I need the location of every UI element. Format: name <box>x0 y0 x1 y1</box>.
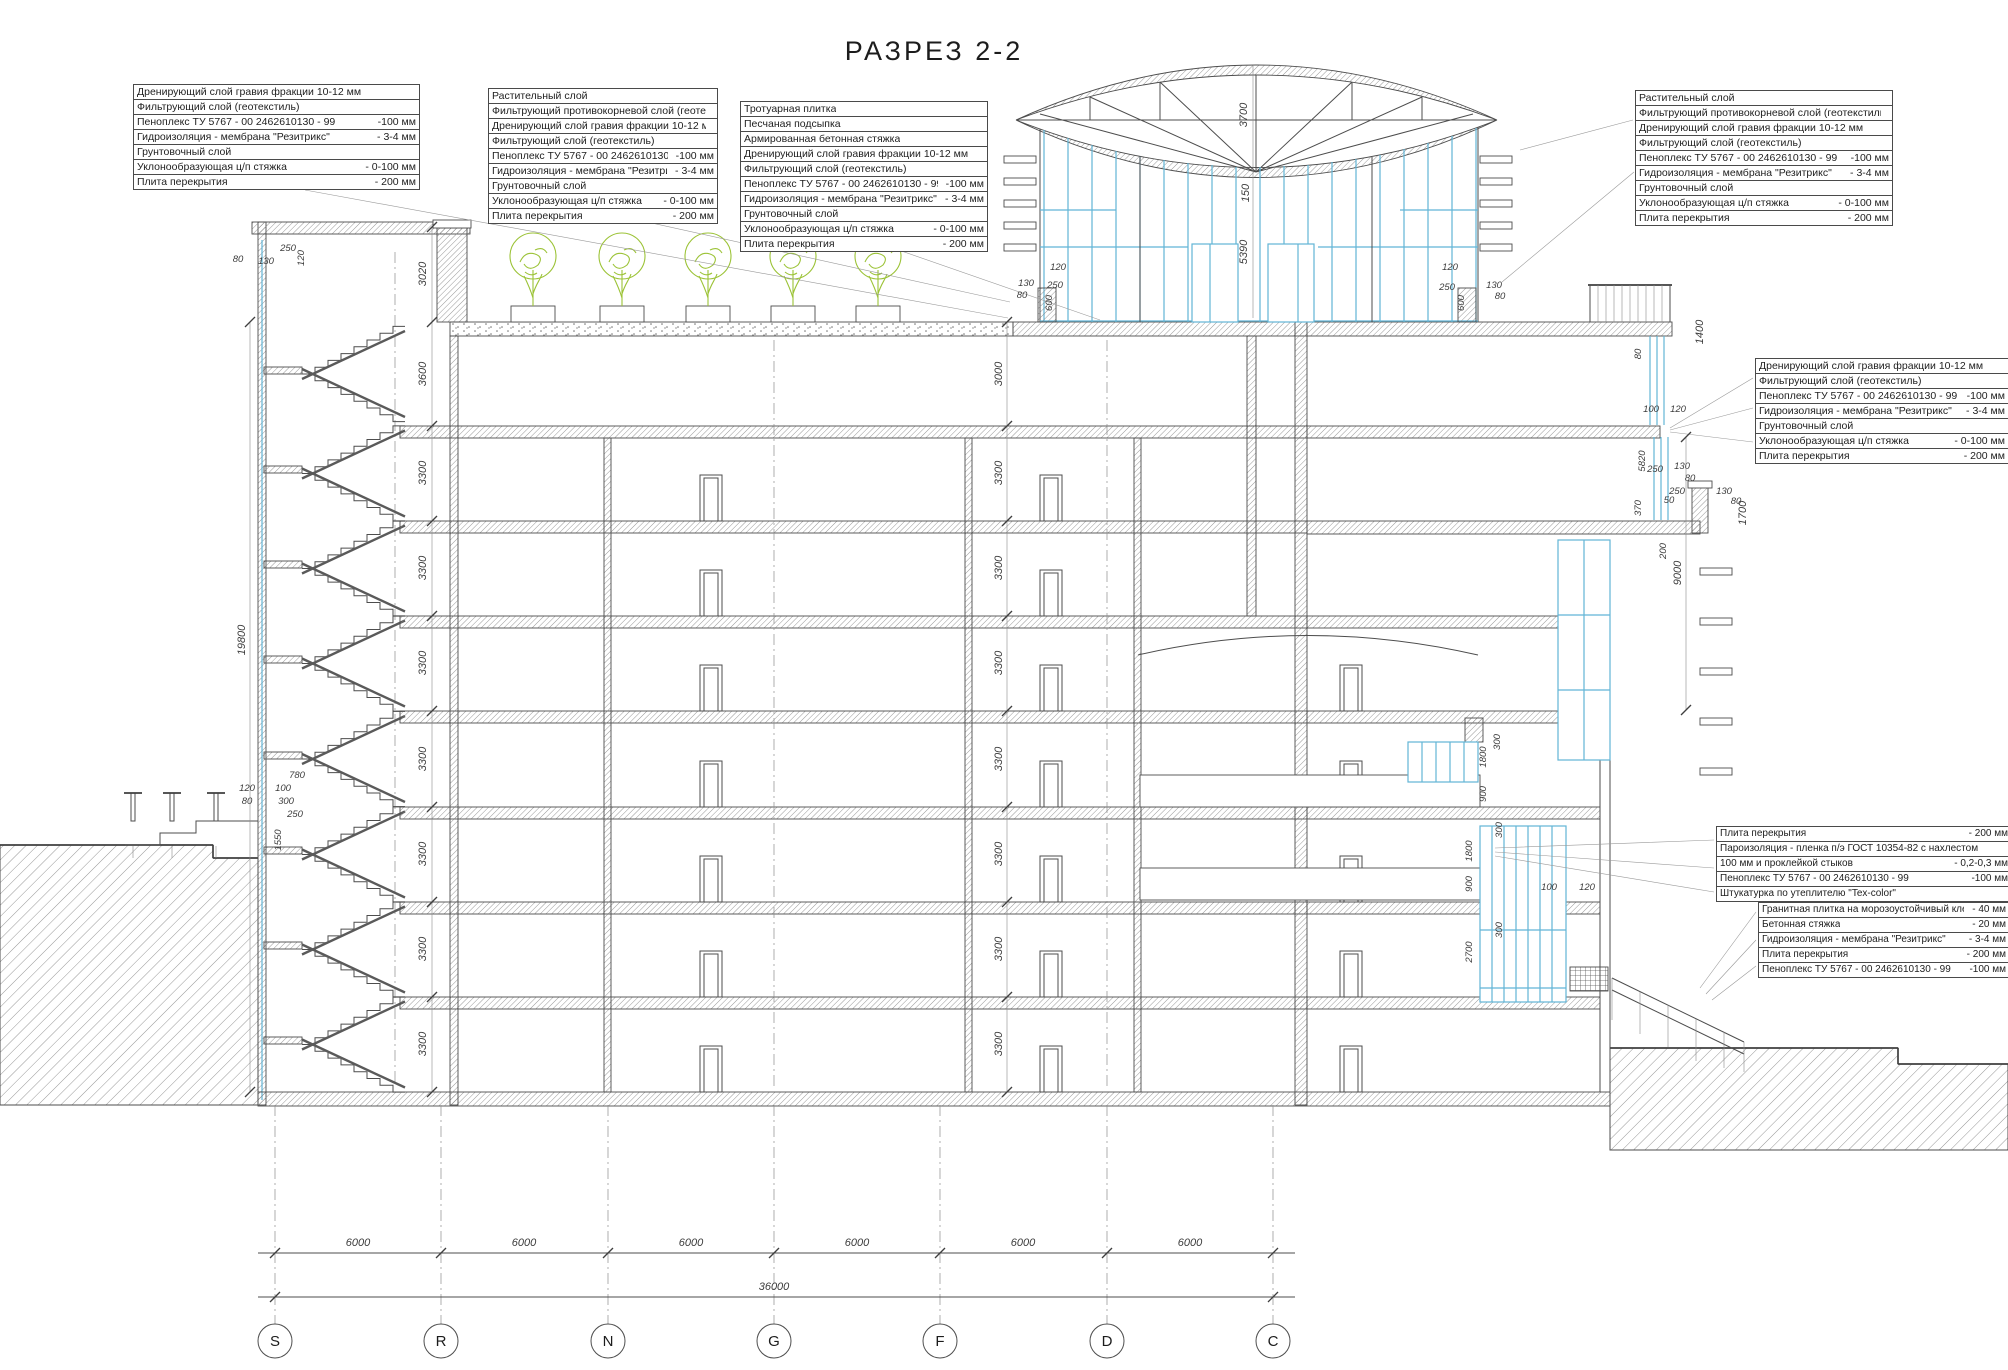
layer-table-pavement: Тротуарная плитка Песчаная подсыпка Арми… <box>740 101 988 252</box>
dimension-label: 300 <box>1494 821 1505 838</box>
table-row: Пеноплекс ТУ 5767 - 00 2462610130 - 99-1… <box>1636 151 1892 166</box>
axis-label: G <box>768 1333 780 1350</box>
dimension-label: 3300 <box>417 841 429 866</box>
dimension-label: 300 <box>1492 733 1503 750</box>
dimension-label: 3300 <box>993 746 1005 771</box>
dimension-label: 19800 <box>236 624 248 655</box>
dimension-label: 36000 <box>759 1281 790 1293</box>
table-row: Фильтрующий слой (геотекстиль) <box>1636 136 1892 151</box>
table-row: Армированная бетонная стяжка <box>741 132 987 147</box>
dimension-label: 1700 <box>1737 500 1749 525</box>
dimension-label: 100 <box>1541 882 1558 893</box>
page-title: РАЗРЕЗ 2-2 <box>764 36 1104 67</box>
dimension-label: 3300 <box>417 555 429 580</box>
table-row: Уклонообразующая ц/п стяжка- 0-100 мм <box>741 222 987 237</box>
dimension-label: 9000 <box>1672 560 1684 585</box>
table-row: Гидроизоляция - мембрана "Резитрикс"- 3-… <box>741 192 987 207</box>
dimension-label: 600 <box>1044 294 1055 311</box>
section-sheet: 3020 3600 3300 3300 3300 3300 3300 3300 … <box>0 0 2008 1370</box>
dimension-label: 120 <box>1050 262 1067 273</box>
penthouse-glazing <box>1004 65 1512 322</box>
table-row: Фильтрующий слой (геотекстиль) <box>741 162 987 177</box>
dimension-label: 1800 <box>1478 746 1489 768</box>
dimension-label: 100 <box>1643 404 1660 415</box>
table-row: Растительный слой <box>489 89 717 104</box>
layer-table-ceiling: Плита перекрытия- 200 мм Пароизоляция - … <box>1716 826 2008 902</box>
dimension-label: 250 <box>1646 464 1664 475</box>
dimension-label: 3600 <box>417 361 429 386</box>
dimension-label: 6000 <box>346 1237 371 1249</box>
dimension-label: 6000 <box>1011 1237 1036 1249</box>
axis-label: F <box>935 1333 944 1350</box>
table-row: Грунтовочный слой <box>134 145 419 160</box>
table-row: Плита перекрытия- 200 мм <box>134 175 419 189</box>
layer-table-annex-roof: Дренирующий слой гравия фракции 10-12 мм… <box>1755 358 2008 464</box>
table-row: Плита перекрытия- 200 мм <box>1636 211 1892 225</box>
table-row: Уклонообразующая ц/п стяжка- 0-100 мм <box>1636 196 1892 211</box>
table-row: Дренирующий слой гравия фракции 10-12 мм <box>134 85 419 100</box>
table-row: Фильтрующий слой (геотекстиль) <box>1756 374 2008 389</box>
dimension-label: 3300 <box>417 936 429 961</box>
dimension-label: 120 <box>1579 882 1596 893</box>
table-row: Фильтрующий слой (геотекстиль) <box>489 134 717 149</box>
dimension-label: 6000 <box>679 1237 704 1249</box>
dimension-label: 250 <box>286 809 304 820</box>
dimension-label: 3300 <box>993 1031 1005 1056</box>
table-row: Плита перекрытия- 200 мм <box>1756 449 2008 463</box>
table-row: Дренирующий слой гравия фракции 10-12 мм <box>1636 121 1892 136</box>
dimension-label: 3700 <box>1238 102 1250 127</box>
dimension-label: 120 <box>239 783 256 794</box>
dimension-label: 3300 <box>417 746 429 771</box>
dimension-label: 80 <box>1017 290 1028 301</box>
dimension-label: 150 <box>1240 183 1252 202</box>
layer-table-granite: Гранитная плитка на морозоустойчивый кле… <box>1758 902 2008 978</box>
layer-table-roof-2: Растительный слой Фильтрующий противокор… <box>488 88 718 224</box>
dimension-label: 780 <box>289 770 306 781</box>
dimension-label: 250 <box>279 243 297 254</box>
railing-post <box>124 793 225 821</box>
table-row: Пеноплекс ТУ 5767 - 00 2462610130 - 99-1… <box>134 115 419 130</box>
dimension-label: 300 <box>1494 921 1505 938</box>
dimension-label: 250 <box>1438 282 1456 293</box>
dimension-label: 3020 <box>417 261 429 286</box>
table-row: Гранитная плитка на морозоустойчивый кле… <box>1759 903 2008 918</box>
dimension-label: 250 <box>1046 280 1064 291</box>
table-row: Уклонообразующая ц/п стяжка- 0-100 мм <box>134 160 419 175</box>
table-row: 100 мм и проклейкой стыков- 0,2-0,3 мм <box>1717 857 2008 872</box>
dimension-label: 6000 <box>1178 1237 1203 1249</box>
table-row: Уклонообразующая ц/п стяжка- 0-100 мм <box>1756 434 2008 449</box>
table-row: Растительный слой <box>1636 91 1892 106</box>
dimension-label: 6000 <box>512 1237 537 1249</box>
axis-markers: S R N G F D C <box>258 1324 1290 1358</box>
dimension-label: 1800 <box>1464 840 1475 862</box>
table-row: Плита перекрытия- 200 мм <box>741 237 987 251</box>
dimension-label: 370 <box>1633 499 1644 516</box>
table-row: Фильтрующий противокорневой слой (геотек… <box>1636 106 1892 121</box>
dimension-label: 80 <box>1633 348 1644 359</box>
ground-left <box>0 845 258 1105</box>
table-row: Дренирующий слой гравия фракции 10-12 мм <box>1756 359 2008 374</box>
dome-truss <box>1016 65 1497 178</box>
axis-label: C <box>1268 1333 1279 1350</box>
layer-table-roof-right: Растительный слой Фильтрующий противокор… <box>1635 90 1893 226</box>
stair-tower <box>252 220 471 1105</box>
dimension-label: 900 <box>1478 785 1489 802</box>
table-row: Пеноплекс ТУ 5767 - 00 2462610130 - 99-1… <box>489 149 717 164</box>
dimension-label: 80 <box>1495 291 1506 302</box>
table-row: Гидроизоляция - мембрана "Резитрикс"- 3-… <box>134 130 419 145</box>
ground-right <box>1610 1048 2008 1150</box>
dimension-label: 3300 <box>993 555 1005 580</box>
dimension-label: 120 <box>296 249 307 266</box>
table-row: Плита перекрытия- 200 мм <box>1759 948 2008 963</box>
table-row: Грунтовочный слой <box>741 207 987 222</box>
dimension-label: 3300 <box>993 650 1005 675</box>
table-row: Пеноплекс ТУ 5767 - 00 2462610130 - 99-1… <box>1759 963 2008 977</box>
dimension-label: 120 <box>1442 262 1459 273</box>
dimension-label: 130 <box>1674 461 1691 472</box>
axis-label: N <box>603 1333 614 1350</box>
dimension-label: 80 <box>1685 473 1696 484</box>
dimension-label: 3300 <box>417 650 429 675</box>
dimension-label: 130 <box>258 256 275 267</box>
axis-label: R <box>436 1333 447 1350</box>
table-row: Гидроизоляция - мембрана "Резитрикс"- 3-… <box>489 164 717 179</box>
table-row: Пеноплекс ТУ 5767 - 00 2462610130 - 99-1… <box>741 177 987 192</box>
table-row: Тротуарная плитка <box>741 102 987 117</box>
table-row: Песчаная подсыпка <box>741 117 987 132</box>
table-row: Гидроизоляция - мембрана "Резитрикс"- 3-… <box>1636 166 1892 181</box>
dimension-label: 3300 <box>417 460 429 485</box>
table-row: Плита перекрытия- 200 мм <box>489 209 717 223</box>
table-row: Грунтовочный слой <box>489 179 717 194</box>
dimension-label: 1550 <box>273 829 284 851</box>
table-row: Фильтрующий противокорневой слой (геотек… <box>489 104 717 119</box>
dimension-label: 3300 <box>417 1031 429 1056</box>
table-row: Дренирующий слой гравия фракции 10-12 мм <box>489 119 717 134</box>
table-row: Гидроизоляция - мембрана "Резитрикс"- 3-… <box>1759 933 2008 948</box>
table-row: Пеноплекс ТУ 5767 - 00 2462610130 - 99-1… <box>1756 389 2008 404</box>
table-row: Фильтрующий слой (геотекстиль) <box>134 100 419 115</box>
table-row: Дренирующий слой гравия фракции 10-12 мм <box>741 147 987 162</box>
dimension-label: 80 <box>233 254 244 265</box>
table-row: Грунтовочный слой <box>1756 419 2008 434</box>
dimension-label: 1400 <box>1694 319 1706 344</box>
dim-cluster-entry: 780 120 100 80 300 250 1550 <box>239 770 306 851</box>
layer-table-roof-1: Дренирующий слой гравия фракции 10-12 мм… <box>133 84 420 190</box>
dimension-label: 3300 <box>993 936 1005 961</box>
dimension-label: 120 <box>1670 404 1687 415</box>
dimension-label: 6000 <box>845 1237 870 1249</box>
dim-cluster-dome: 3700 150 5390 600 600 120 250 130 80 120… <box>1017 102 1506 311</box>
table-row: Плита перекрытия- 200 мм <box>1717 827 2008 842</box>
dimension-label: 2700 <box>1464 941 1475 964</box>
dimension-label: 3300 <box>993 841 1005 866</box>
dimension-label: 200 <box>1658 542 1669 560</box>
table-row: Бетонная стяжка- 20 мм <box>1759 918 2008 933</box>
dimension-label: 3300 <box>993 460 1005 485</box>
dimension-label: 300 <box>278 796 295 807</box>
dimension-label: 600 <box>1456 294 1467 311</box>
table-row: Гидроизоляция - мембрана "Резитрикс"- 3-… <box>1756 404 2008 419</box>
bottom-dims: 6000 6000 6000 6000 6000 6000 36000 <box>258 1237 1295 1302</box>
table-row: Грунтовочный слой <box>1636 181 1892 196</box>
dimension-label: 3000 <box>993 361 1005 386</box>
axis-label: S <box>270 1333 280 1350</box>
roof-balcony <box>1588 285 1672 322</box>
dimension-label: 5390 <box>1238 239 1250 264</box>
table-row: Штукатурка по утеплителю "Tex-color" <box>1717 887 2008 901</box>
dimension-label: 100 <box>275 783 292 794</box>
table-row: Пароизоляция - пленка п/э ГОСТ 10354-82 … <box>1717 842 2008 857</box>
table-row: Пеноплекс ТУ 5767 - 00 2462610130 - 99-1… <box>1717 872 2008 887</box>
dimension-label: 50 <box>1664 495 1675 506</box>
dimension-label: 130 <box>1486 280 1503 291</box>
dimension-label: 80 <box>242 796 253 807</box>
table-row: Уклонообразующая ц/п стяжка- 0-100 мм <box>489 194 717 209</box>
dim-cluster-top-left: 80 130 250 120 <box>233 243 307 267</box>
axis-label: D <box>1102 1333 1113 1350</box>
dimension-label: 130 <box>1018 278 1035 289</box>
dimension-label: 900 <box>1464 875 1475 892</box>
